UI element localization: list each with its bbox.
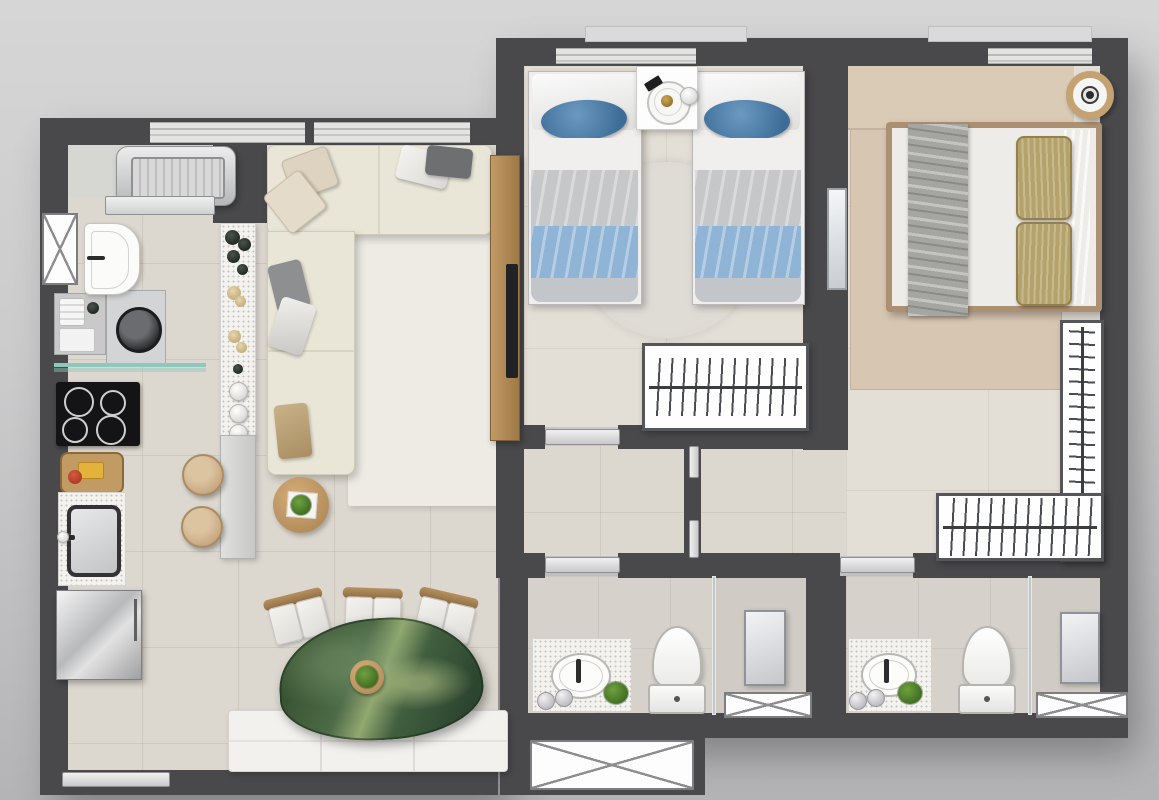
bath1-jar-1	[537, 692, 555, 710]
master-closet-horizontal	[936, 493, 1104, 561]
sofa-pillow-tan	[273, 402, 312, 459]
khaki-pillow-2	[1016, 222, 1072, 306]
bath1-plant	[604, 682, 628, 704]
master-bedroom-window	[988, 48, 1092, 64]
dark-bowl	[237, 264, 248, 275]
balcony-glass-door	[105, 196, 215, 215]
bed-footer	[531, 278, 638, 302]
bed-sheet	[695, 138, 801, 170]
refrigerator	[56, 590, 142, 680]
glass-shelf	[54, 363, 206, 367]
wall-bath-divider	[806, 576, 846, 715]
master-headboard-panel	[848, 66, 1074, 130]
kitchen-faucet-base	[57, 531, 69, 543]
wall-twin-bottom-left	[524, 425, 545, 449]
laundry-shelf	[54, 293, 106, 355]
dried-flowers	[228, 330, 241, 343]
bar-counter-upper	[220, 223, 256, 437]
folded-towels	[59, 298, 85, 326]
bath2-door-threshold	[840, 557, 915, 573]
tv	[506, 264, 518, 378]
bath2-shower-glass	[1060, 612, 1100, 684]
twin-bedroom-window	[556, 48, 696, 64]
kitchen-sink-counter	[58, 492, 126, 586]
tomato-item	[68, 470, 82, 484]
bath1-faucet	[576, 659, 581, 683]
bath1-shower-partition	[712, 576, 716, 715]
laundry-sink-basin	[91, 231, 129, 289]
bath1-toilet-tank	[648, 684, 706, 714]
wall-right-outer	[1100, 38, 1128, 738]
dried-flowers	[235, 296, 246, 307]
living-rug	[348, 230, 498, 506]
bar-stool-2	[181, 506, 223, 548]
bath1-vent-box	[724, 692, 812, 718]
floorplan-stage	[0, 0, 1159, 800]
hall-passage-trim-2	[689, 520, 699, 558]
duct-x-box	[530, 740, 694, 790]
washing-machine	[106, 290, 166, 364]
bath2-shower-partition	[1028, 576, 1032, 715]
khaki-pillow-1	[1016, 136, 1072, 220]
bath2-faucet	[884, 659, 889, 683]
bed-blanket-gray	[531, 170, 638, 226]
dried-flowers	[236, 342, 247, 353]
burner	[96, 415, 126, 445]
decor-center-dot	[1086, 91, 1094, 99]
bath2-jar-2	[867, 689, 885, 707]
kitchen-sink-basin	[67, 505, 121, 577]
bath2-toilet-tank	[958, 684, 1016, 714]
bed-footer	[695, 278, 801, 302]
side-table-plant	[291, 495, 311, 515]
laundry-sink	[84, 223, 140, 295]
exterior-ledge-1	[585, 26, 747, 42]
cutting-board	[60, 452, 124, 494]
burner	[64, 387, 94, 417]
entrance-door-threshold	[62, 772, 170, 787]
twin-bedroom-door-threshold	[545, 429, 620, 445]
bar-stool-1	[182, 454, 224, 496]
wall-bath-top-a	[524, 553, 545, 578]
bath2-plant	[898, 682, 922, 704]
sofa-pillow-dark	[425, 145, 474, 180]
twin-bed-2	[692, 71, 805, 305]
burner	[62, 417, 88, 443]
bar-counter-lower	[220, 435, 256, 559]
dark-bowl	[238, 238, 251, 251]
hall-passage-trim	[689, 446, 699, 478]
bed-blanket-blue	[695, 226, 801, 278]
fridge-handle	[134, 599, 137, 641]
washer-door	[116, 307, 162, 353]
master-bed	[886, 122, 1102, 312]
detergent-jar	[87, 302, 99, 314]
gray-throw-blanket	[908, 124, 968, 316]
wall-decor-ring	[1066, 71, 1114, 119]
wall-bath-top-b	[618, 553, 840, 578]
exterior-ledge-2	[928, 26, 1092, 42]
mirror-panel	[827, 188, 847, 290]
burner	[100, 390, 126, 416]
twin-closet-hanger-rack	[642, 343, 809, 431]
table-centerpiece	[350, 660, 384, 694]
storage-box	[59, 328, 95, 352]
flush-button	[984, 696, 990, 702]
bath2-jar-1	[849, 692, 867, 710]
dark-bowl	[233, 364, 243, 374]
centerpiece-plant	[356, 666, 378, 688]
small-plate	[680, 87, 698, 105]
bath1-shower-glass	[744, 610, 786, 686]
white-plate	[229, 404, 248, 423]
dark-bowl	[227, 250, 240, 263]
shaft-x-window	[42, 213, 78, 285]
cooktop	[56, 382, 140, 446]
bed-blanket-gray	[695, 170, 801, 226]
gold-cup	[661, 95, 673, 107]
bath2-vent-box	[1036, 692, 1128, 718]
laundry-faucet	[87, 256, 105, 260]
ac-grille	[131, 157, 225, 199]
flush-button	[674, 696, 680, 702]
twin-bed-1	[528, 71, 642, 305]
white-plate	[229, 382, 248, 401]
bed-blanket-blue	[531, 226, 638, 278]
bath1-door-threshold	[545, 557, 620, 573]
side-table	[273, 477, 329, 533]
bed-sheet	[531, 138, 638, 170]
bath1-jar-2	[555, 689, 573, 707]
living-window-post-mid	[305, 120, 314, 143]
nightstand	[636, 66, 698, 130]
